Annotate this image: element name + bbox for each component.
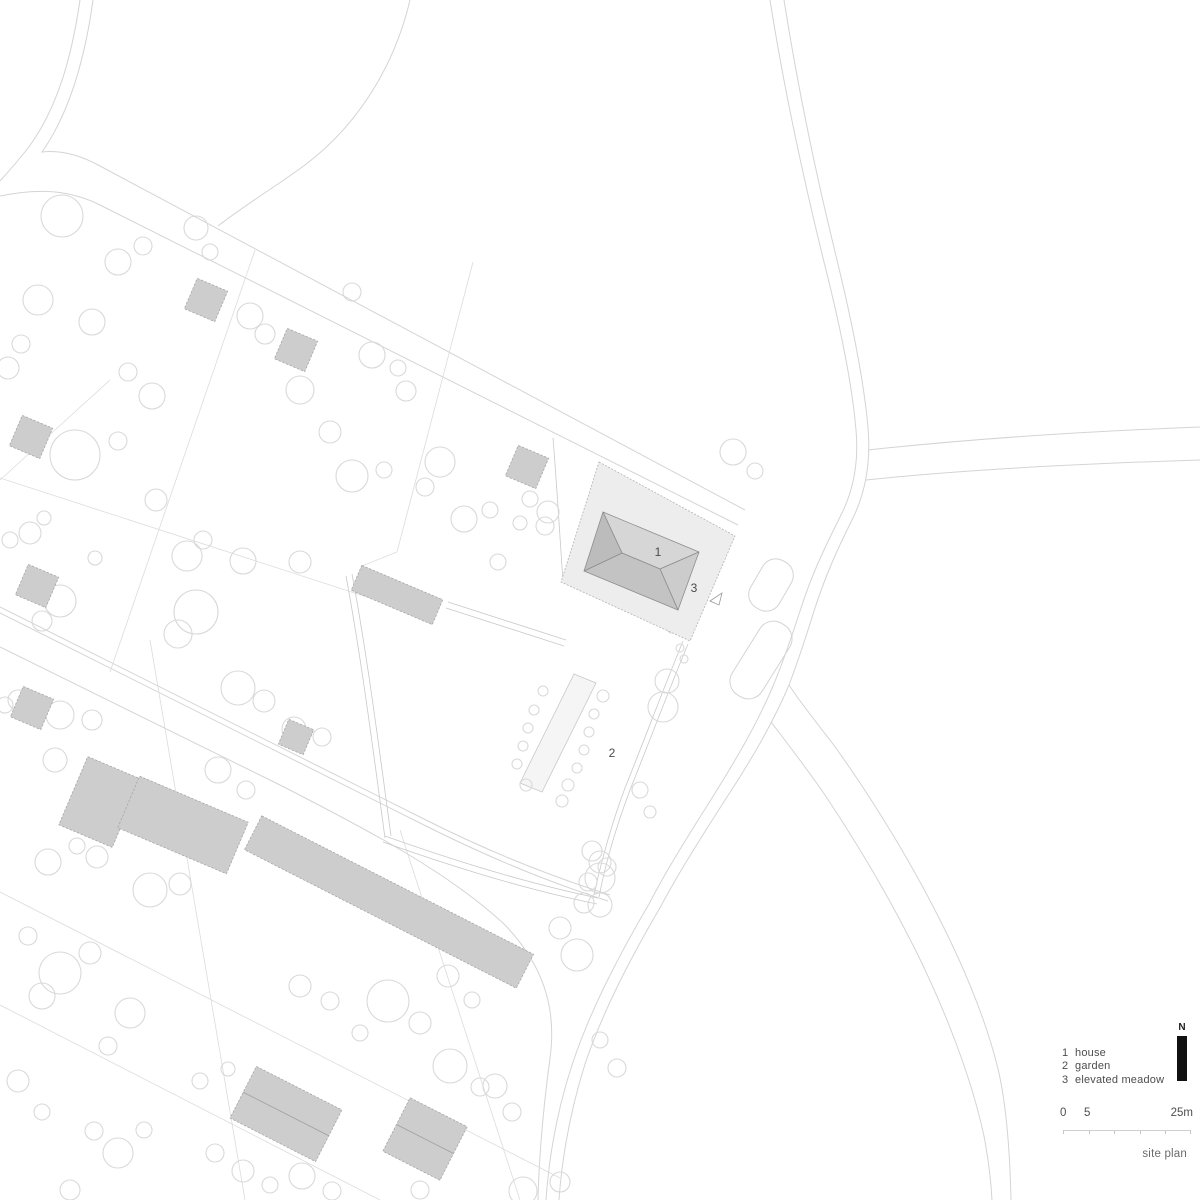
tree — [537, 501, 559, 523]
site-layer: 1 2 3 — [561, 462, 735, 760]
tree — [503, 1103, 521, 1121]
tree — [109, 432, 127, 450]
tree — [174, 590, 218, 634]
context-building — [505, 445, 548, 488]
tree — [237, 781, 255, 799]
tree — [29, 983, 55, 1009]
tree — [359, 342, 385, 368]
context-building — [351, 565, 443, 624]
tree — [39, 952, 81, 994]
label-garden: 2 — [609, 746, 616, 760]
tree — [572, 763, 582, 773]
site-plan-drawing: 1 2 3 — [0, 0, 1200, 1200]
tree — [172, 541, 202, 571]
tree — [237, 303, 263, 329]
legend-label: house — [1075, 1047, 1106, 1060]
tree — [464, 992, 480, 1008]
context-building — [230, 1066, 342, 1161]
tree — [562, 779, 574, 791]
tree — [451, 506, 477, 532]
context-building — [383, 1098, 467, 1181]
legend-item-garden: 2 garden — [1062, 1060, 1164, 1073]
tree — [523, 723, 533, 733]
tree — [19, 927, 37, 945]
tree — [512, 759, 522, 769]
tree — [60, 1180, 80, 1200]
tree — [416, 478, 434, 496]
tree — [597, 690, 609, 702]
context-building — [10, 686, 53, 729]
tree — [35, 849, 61, 875]
context-building — [278, 719, 313, 754]
tree — [513, 516, 527, 530]
tree — [319, 421, 341, 443]
context-building — [184, 278, 227, 321]
tree — [482, 502, 498, 518]
tree — [680, 655, 688, 663]
tree — [34, 1104, 50, 1120]
legend-item-house: 1 house — [1062, 1047, 1164, 1060]
tree — [584, 727, 594, 737]
road-layby — [743, 553, 799, 616]
tree — [202, 244, 218, 260]
tree — [561, 939, 593, 971]
parcel-lines-layer — [0, 250, 560, 1200]
tree — [352, 1025, 368, 1041]
tree — [230, 548, 256, 574]
tree — [169, 873, 191, 895]
tree — [522, 491, 538, 507]
tree — [289, 975, 311, 997]
north-arrow-icon — [1177, 1036, 1187, 1081]
tree — [205, 757, 231, 783]
tree — [367, 980, 409, 1022]
tree — [286, 376, 314, 404]
tree — [136, 1122, 152, 1138]
tree — [396, 381, 416, 401]
legend-num: 3 — [1062, 1074, 1075, 1087]
tree — [105, 249, 131, 275]
legend-num: 1 — [1062, 1047, 1075, 1060]
scale-zero: 0 — [1060, 1107, 1066, 1119]
plan-caption: site plan — [1037, 1148, 1187, 1160]
context-building — [9, 415, 52, 458]
tree — [411, 1181, 429, 1199]
tree — [390, 360, 406, 376]
context-building — [274, 328, 317, 371]
tree — [644, 806, 656, 818]
tree — [50, 430, 100, 480]
tree — [88, 551, 102, 565]
tree — [103, 1138, 133, 1168]
tree — [23, 285, 53, 315]
legend-num: 2 — [1062, 1060, 1075, 1073]
tree — [37, 511, 51, 525]
tree — [592, 1032, 608, 1048]
tree — [608, 1059, 626, 1077]
tree — [433, 1049, 467, 1083]
tree — [289, 1163, 315, 1189]
tree — [79, 309, 105, 335]
tree — [632, 782, 648, 798]
legend: 1 house 2 garden 3 elevated meadow — [1062, 1047, 1164, 1087]
tree — [19, 522, 41, 544]
tree — [376, 462, 392, 478]
context-building — [15, 564, 58, 607]
road-island — [724, 615, 798, 705]
tree — [79, 942, 101, 964]
tree — [85, 1122, 103, 1140]
tree — [336, 460, 368, 492]
tree — [145, 489, 167, 511]
tree — [43, 748, 67, 772]
context-building — [244, 816, 533, 988]
legend-label: elevated meadow — [1075, 1074, 1164, 1087]
tree — [221, 671, 255, 705]
site-plan: 1 2 3 1 house 2 garden 3 elevated meadow… — [0, 0, 1200, 1200]
label-meadow: 3 — [691, 581, 698, 595]
scale-end: 25m — [1171, 1107, 1193, 1119]
tree — [471, 1078, 489, 1096]
tree — [437, 965, 459, 987]
tree — [323, 1182, 341, 1200]
tree — [0, 357, 19, 379]
tree — [12, 335, 30, 353]
tree — [509, 1177, 537, 1200]
tree — [529, 705, 539, 715]
tree — [425, 447, 455, 477]
tree — [69, 838, 85, 854]
tree — [538, 686, 548, 696]
tree — [2, 532, 18, 548]
tree — [41, 195, 83, 237]
tree — [289, 551, 311, 573]
tree — [86, 846, 108, 868]
tree — [115, 998, 145, 1028]
tree — [133, 873, 167, 907]
legend-label: garden — [1075, 1060, 1110, 1073]
tree — [206, 1144, 224, 1162]
tree — [579, 745, 589, 755]
tree — [184, 216, 208, 240]
tree — [119, 363, 137, 381]
tree — [255, 324, 275, 344]
tree — [556, 795, 568, 807]
tree — [7, 1070, 29, 1092]
context-building — [118, 776, 249, 874]
tree — [0, 697, 13, 713]
tree — [194, 531, 212, 549]
tree — [262, 1177, 278, 1193]
tree — [99, 1037, 117, 1055]
tree — [589, 709, 599, 719]
label-house: 1 — [655, 545, 662, 559]
scale-line — [1063, 1130, 1191, 1135]
tree — [232, 1160, 254, 1182]
tree — [747, 463, 763, 479]
tree — [313, 728, 331, 746]
north-indicator: N — [1170, 1022, 1194, 1081]
tree — [409, 1012, 431, 1034]
scale-bar: 0 5 25m — [1063, 1107, 1191, 1135]
tree — [483, 1074, 507, 1098]
tree — [536, 517, 554, 535]
entrance-arrow-icon — [710, 593, 722, 605]
tree — [490, 554, 506, 570]
tree — [549, 917, 571, 939]
tree — [134, 237, 152, 255]
trees-layer — [0, 195, 763, 1200]
tree — [192, 1073, 208, 1089]
tree — [139, 383, 165, 409]
legend-item-meadow: 3 elevated meadow — [1062, 1074, 1164, 1087]
tree — [720, 439, 746, 465]
tree — [343, 283, 361, 301]
tree — [253, 690, 275, 712]
scale-five: 5 — [1084, 1107, 1090, 1119]
tree — [518, 741, 528, 751]
north-label: N — [1170, 1022, 1194, 1033]
tree — [82, 710, 102, 730]
tree — [321, 992, 339, 1010]
